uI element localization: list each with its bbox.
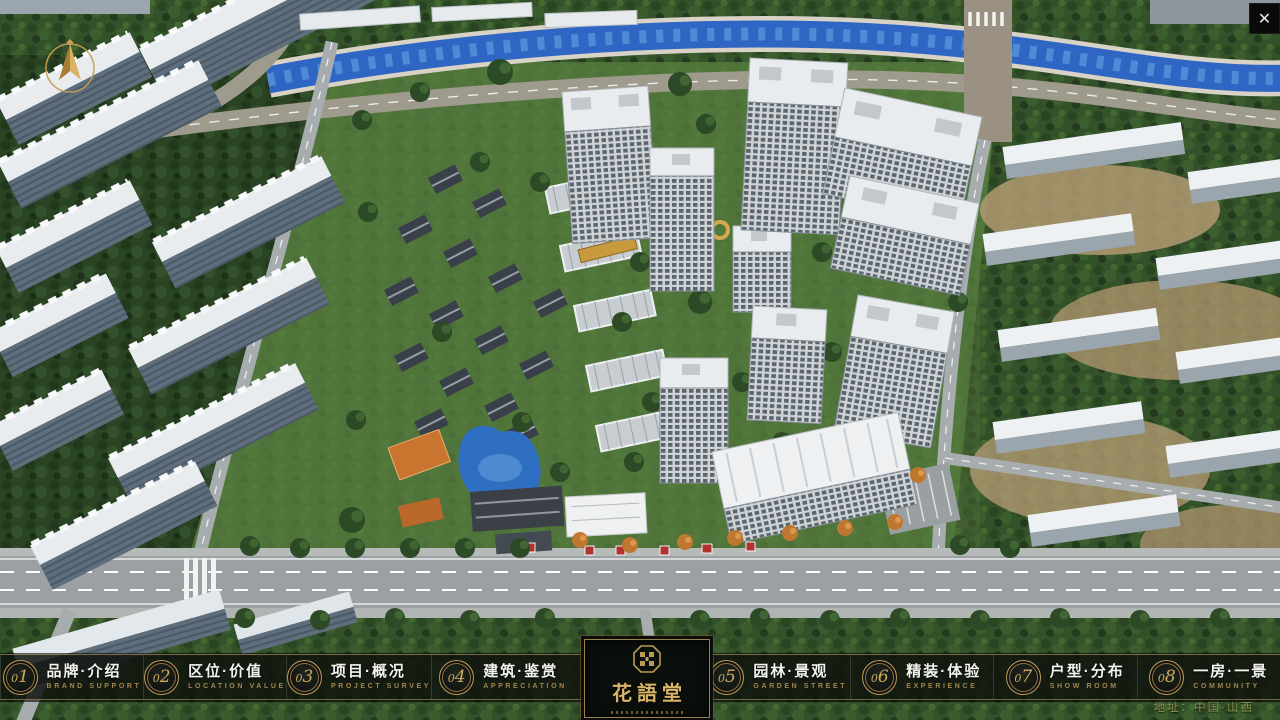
menu-label-zh: 户型·分布 — [1050, 664, 1125, 679]
menu-label-zh: 品牌·介绍 — [47, 664, 122, 679]
menu-item-location[interactable]: 02 区位·价值 LOCATION VALUE — [143, 655, 286, 699]
menu-item-floorplan[interactable]: 07 户型·分布 SHOW ROOM — [993, 655, 1137, 699]
menu-label-en: GARDEN STREET — [753, 683, 847, 690]
number-badge: 02 — [144, 660, 179, 695]
number-badge: 03 — [287, 660, 322, 695]
project-address: 地址：中国·山西 — [1154, 699, 1254, 715]
number-badge: 05 — [709, 660, 744, 695]
close-icon: ✕ — [1258, 9, 1271, 29]
number-badge: 07 — [1006, 660, 1041, 695]
menu-label-zh: 精装·体验 — [906, 664, 981, 679]
menu-label-en: APPRECIATION — [483, 683, 567, 690]
menu-label-en: EXPERIENCE — [906, 683, 977, 690]
brand-name: 花語堂 — [607, 677, 687, 706]
brand-plaque[interactable]: 花語堂 — [584, 639, 710, 718]
menu-item-brand[interactable]: 01 品牌·介绍 BRAND SUPPORT — [0, 655, 143, 699]
menu-label-en: SHOW ROOM — [1050, 683, 1119, 690]
brand-seal-icon — [632, 644, 662, 674]
close-button[interactable]: ✕ — [1249, 3, 1280, 34]
menu-label-zh: 园林·景观 — [753, 664, 828, 679]
menu-item-interior[interactable]: 06 精装·体验 EXPERIENCE — [850, 655, 994, 699]
menu-label-zh: 区位·价值 — [188, 664, 263, 679]
menu-item-community[interactable]: 08 一房·一景 COMMUNITY — [1137, 655, 1280, 699]
menu-label-zh: 一房·一景 — [1193, 664, 1268, 679]
masterplan-render — [0, 0, 1280, 720]
number-badge: 04 — [439, 660, 474, 695]
menu-item-garden[interactable]: 05 园林·景观 GARDEN STREET — [706, 655, 850, 699]
number-badge: 08 — [1149, 660, 1184, 695]
number-badge: 01 — [3, 660, 38, 695]
number-badge: 06 — [862, 660, 897, 695]
menu-label-zh: 建筑·鉴赏 — [483, 664, 558, 679]
brand-caption-line — [611, 711, 683, 714]
presentation-window: ✕ 01 品牌·介绍 BRAND SUPPORT 02 区位·价值 LOCATI… — [0, 0, 1280, 720]
menu-group-left: 01 品牌·介绍 BRAND SUPPORT 02 区位·价值 LOCATION… — [0, 655, 574, 699]
menu-label-en: LOCATION VALUE — [188, 683, 286, 690]
menu-group-right: 05 园林·景观 GARDEN STREET 06 精装·体验 EXPERIEN… — [706, 655, 1280, 699]
menu-label-en: BRAND SUPPORT — [47, 683, 142, 690]
menu-label-zh: 项目·概况 — [331, 664, 406, 679]
menu-label-en: PROJECT SURVEY — [331, 683, 431, 690]
menu-label-en: COMMUNITY — [1193, 683, 1260, 690]
menu-item-architecture[interactable]: 04 建筑·鉴赏 APPRECIATION — [431, 655, 574, 699]
menu-item-project[interactable]: 03 项目·概况 PROJECT SURVEY — [286, 655, 431, 699]
